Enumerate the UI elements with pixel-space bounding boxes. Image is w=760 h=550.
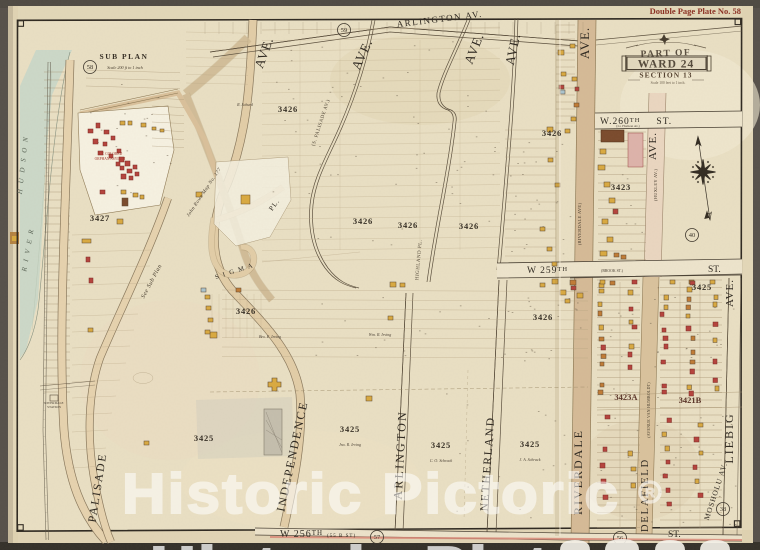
svg-text:Historic Pict: Historic Pict <box>150 535 550 550</box>
svg-text:Historic Pictoric: Historic Pictoric <box>122 462 620 526</box>
svg-text:R: R <box>645 485 655 500</box>
